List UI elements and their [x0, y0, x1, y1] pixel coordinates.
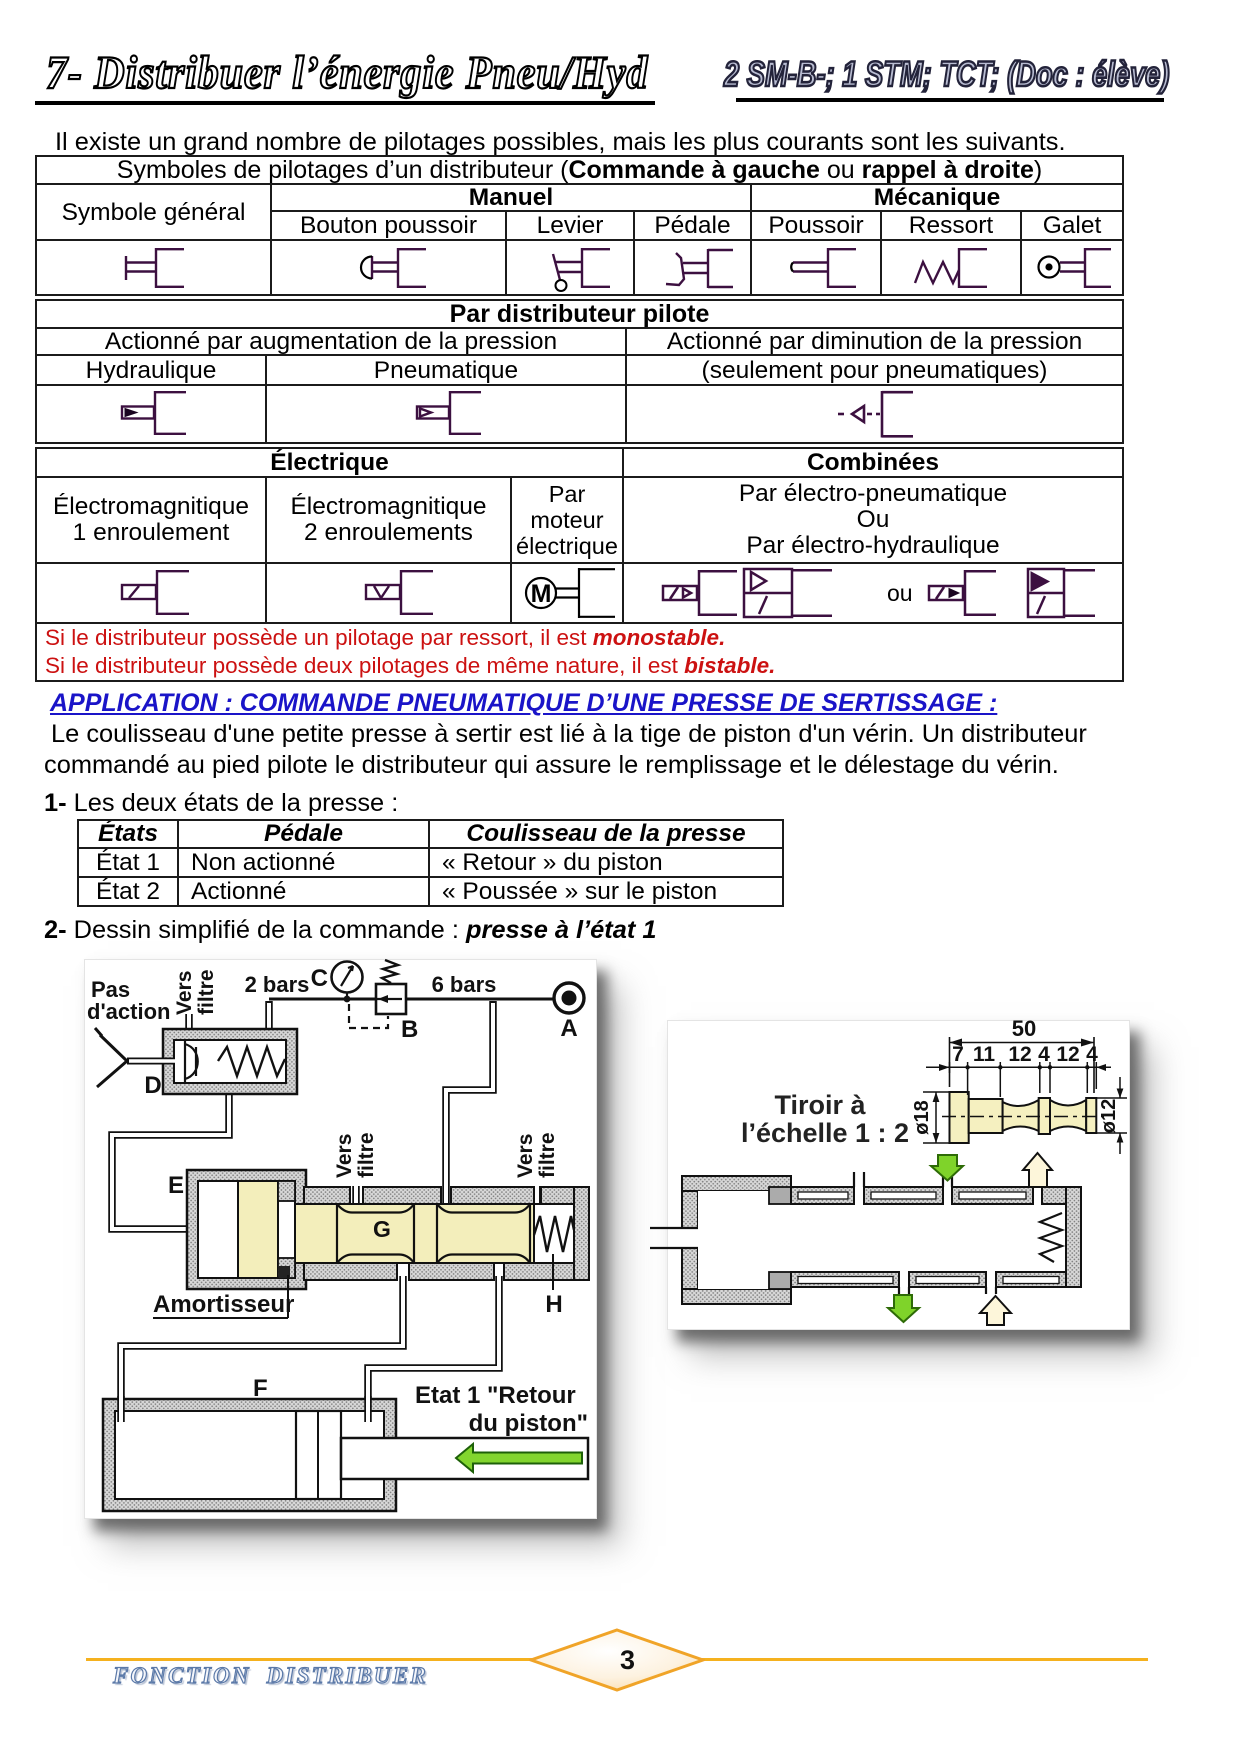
- svg-text:Etat 1 "Retour: Etat 1 "Retour: [415, 1382, 576, 1409]
- svg-text:Amortisseur: Amortisseur: [153, 1291, 294, 1318]
- svg-text:l’échelle 1 : 2: l’échelle 1 : 2: [741, 1118, 909, 1148]
- svg-text:filtre: filtre: [195, 969, 218, 1015]
- svg-text:50: 50: [1012, 1016, 1036, 1041]
- svg-text:4: 4: [1086, 1043, 1098, 1066]
- svg-text:G: G: [373, 1216, 391, 1242]
- svg-text:H: H: [545, 1291, 562, 1318]
- svg-text:filtre: filtre: [536, 1132, 559, 1178]
- svg-text:Vers: Vers: [514, 1134, 537, 1178]
- svg-text:7: 7: [952, 1043, 964, 1066]
- svg-text:D: D: [144, 1072, 161, 1099]
- svg-text:4: 4: [1038, 1043, 1050, 1066]
- svg-text:12: 12: [1056, 1043, 1079, 1066]
- svg-text:filtre: filtre: [355, 1132, 378, 1178]
- svg-text:ou: ou: [887, 580, 913, 606]
- svg-text:A: A: [560, 1015, 577, 1042]
- svg-text:F: F: [253, 1375, 268, 1402]
- svg-text:Vers: Vers: [173, 971, 196, 1015]
- svg-text:Vers: Vers: [333, 1134, 356, 1178]
- svg-text:11: 11: [973, 1043, 996, 1066]
- svg-text:3: 3: [620, 1645, 635, 1675]
- svg-text:du piston": du piston": [469, 1410, 588, 1437]
- svg-text:M: M: [531, 580, 552, 608]
- svg-text:C: C: [311, 965, 328, 992]
- svg-text:ø12: ø12: [1098, 1099, 1120, 1133]
- svg-text:ø18: ø18: [911, 1100, 933, 1134]
- svg-text:Tiroir à: Tiroir à: [774, 1090, 866, 1120]
- svg-text:d'action: d'action: [87, 999, 170, 1024]
- svg-text:E: E: [168, 1172, 184, 1199]
- svg-text:B: B: [401, 1016, 418, 1043]
- svg-text:12: 12: [1008, 1043, 1031, 1066]
- svg-text:2 bars: 2 bars: [245, 972, 310, 997]
- svg-text:6 bars: 6 bars: [432, 972, 497, 997]
